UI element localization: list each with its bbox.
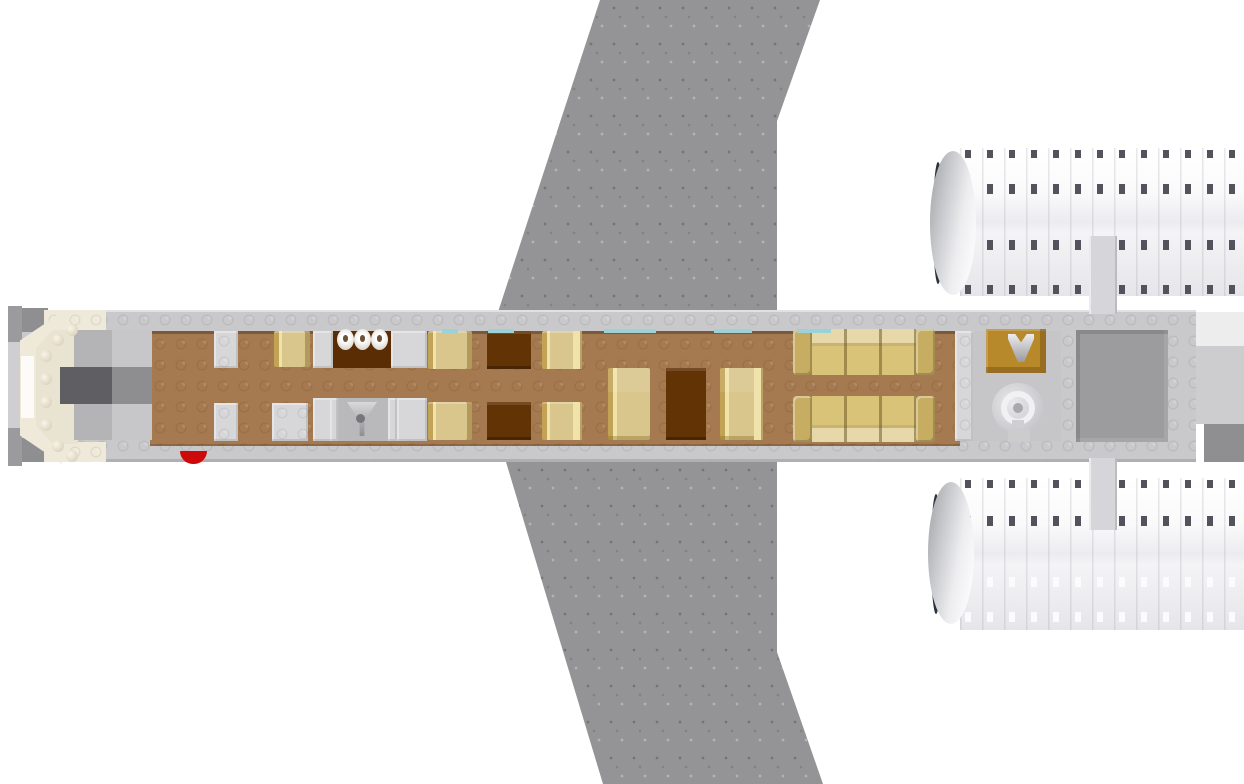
lav-room-wall-right: [388, 398, 397, 441]
nose-stud-6: [66, 324, 78, 336]
lav-wall-right-bottom: [397, 398, 427, 441]
engine-top-slot-row-1: [965, 150, 1241, 158]
dining-bench-right-armrest: [754, 368, 763, 440]
nose-edge-strip-bottom: [8, 428, 22, 466]
cockpit-console-top-right: [112, 330, 152, 367]
toilet-pedestal: [1008, 430, 1030, 442]
nose-stud-3: [40, 396, 52, 408]
table-top: [487, 331, 531, 369]
nose-tip-white: [21, 356, 34, 418]
cockpit-console-top-left: [74, 330, 112, 367]
engine-bottom-slot-row-3: [965, 577, 1241, 587]
seat-top-2-armrest: [573, 331, 582, 369]
engine-top-slot-row-2: [965, 184, 1241, 194]
lav-wall-right-top: [391, 331, 427, 368]
lav-sink-drain: [356, 414, 365, 423]
sofa-top-body: [812, 329, 916, 375]
sofa-bottom-armrest-right: [916, 396, 935, 442]
tail-panel-dark: [1204, 424, 1244, 462]
engine-bottom-intake-cone: [928, 482, 974, 624]
aft-partition-wall: [955, 331, 973, 441]
nose-stud-7: [52, 440, 64, 452]
tail-panel-light: [1196, 312, 1244, 346]
dining-bench-left: [608, 368, 650, 440]
fire-extinguisher: [180, 451, 207, 464]
cockpit-console-bottom-right: [112, 403, 152, 440]
lav-wall-left-top: [313, 331, 333, 368]
galley-roll-2: [354, 329, 371, 350]
tail-panel-mid: [1196, 346, 1244, 424]
nose-stud-2: [40, 373, 52, 385]
wing-top: [470, 0, 835, 312]
engine-top-intake-cone: [930, 151, 976, 295]
sofa-top-armrest-left: [793, 329, 812, 375]
render-viewport[interactable]: [0, 0, 1244, 784]
window-strip-5: [797, 329, 831, 333]
nose-stud-5: [52, 334, 64, 346]
seat-bottom-1: [428, 402, 472, 440]
partition-1-bottom: [214, 403, 238, 441]
partition-2-bottom: [272, 403, 308, 441]
nose-edge-strip-top: [8, 306, 22, 342]
galley-roll-1: [337, 329, 354, 350]
toilet-drain: [1013, 403, 1023, 413]
window-strip-4: [714, 329, 752, 333]
dining-table: [666, 368, 706, 440]
wing-bottom: [490, 462, 835, 784]
cockpit-dash-mid: [112, 367, 152, 404]
dining-bench-right: [720, 368, 756, 440]
sofa-top-armrest-right: [916, 329, 935, 375]
engine-top-pylon: [1089, 236, 1117, 314]
table-bottom: [487, 402, 531, 440]
window-strip-2: [488, 329, 514, 333]
nose-stud-1: [40, 350, 52, 362]
nose-stud-4: [40, 419, 52, 431]
seat-top-1: [428, 331, 472, 369]
sofa-bottom-armrest-left: [793, 396, 812, 442]
engine-bottom-slot-row-4: [965, 612, 1241, 622]
window-strip-1: [442, 329, 458, 333]
partition-1-top: [214, 331, 238, 368]
sofa-bottom-body: [812, 396, 916, 442]
lav-room-wall-left: [330, 398, 338, 441]
cockpit-console-bottom-left: [74, 403, 112, 440]
cargo-bay-floor: [1076, 330, 1168, 442]
engine-bottom-pylon: [1089, 458, 1117, 530]
jump-seat: [274, 331, 310, 367]
toilet-ring-gap: [1012, 420, 1024, 428]
cockpit-dash-dark: [60, 367, 112, 404]
galley-roll-3: [371, 329, 388, 350]
nose-stud-8: [66, 450, 78, 462]
window-strip-3: [604, 329, 656, 333]
seat-bottom-2-armrest: [573, 402, 582, 440]
